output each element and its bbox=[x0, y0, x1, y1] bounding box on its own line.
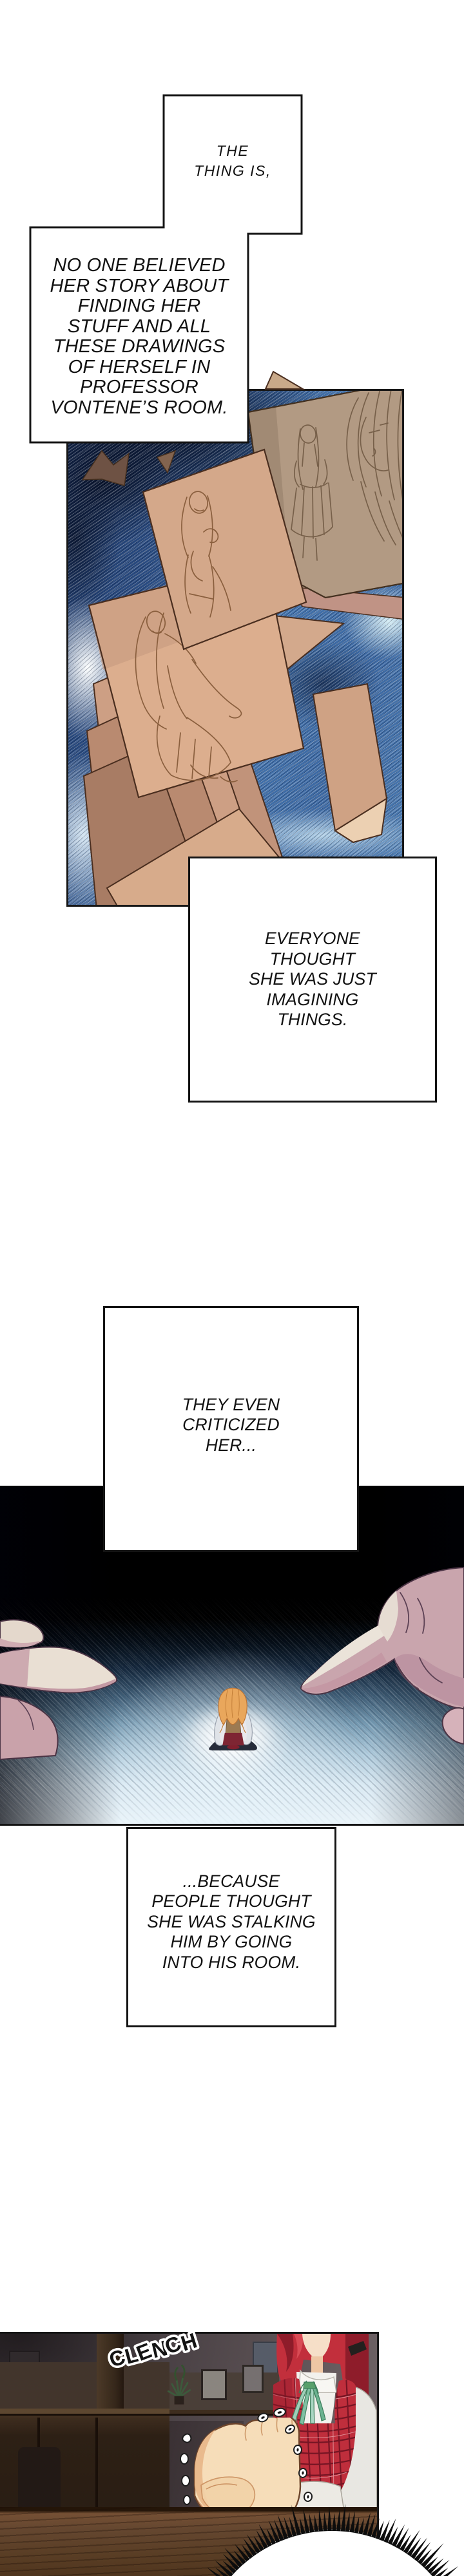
svg-text:CLENCH: CLENCH bbox=[106, 2327, 200, 2372]
